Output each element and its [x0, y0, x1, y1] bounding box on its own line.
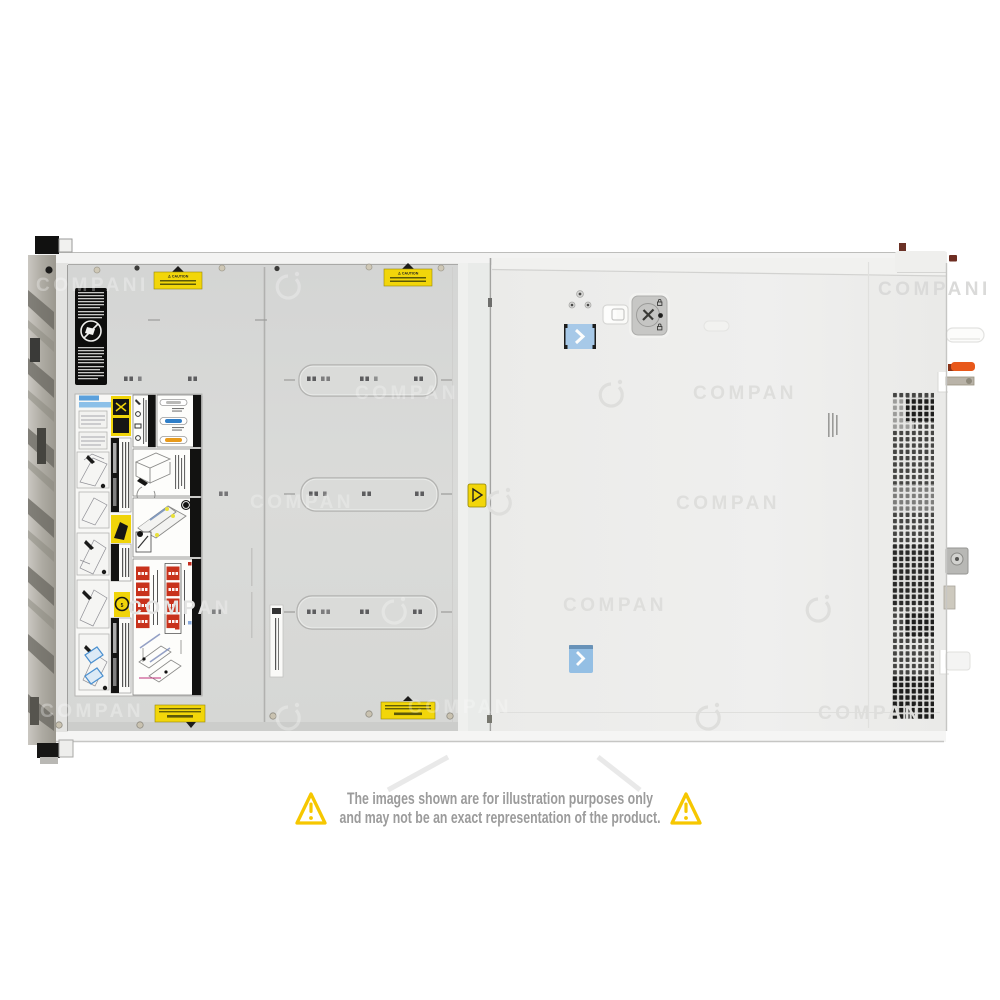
svg-text:COMPAN: COMPAN — [128, 598, 232, 619]
svg-text:5: 5 — [121, 603, 124, 609]
svg-text:COMPANI: COMPANI — [878, 279, 991, 300]
svg-text:⚠ CAUTION: ⚠ CAUTION — [398, 272, 419, 276]
svg-text:COMPAN: COMPAN — [676, 493, 780, 514]
svg-text:COMPANI: COMPANI — [36, 275, 149, 296]
svg-text:⚠ CAUTION: ⚠ CAUTION — [168, 275, 189, 279]
svg-text:COMPAN: COMPAN — [40, 701, 144, 722]
svg-text:The images shown are for illus: The images shown are for illustration pu… — [347, 790, 654, 808]
svg-text:COMPAN: COMPAN — [563, 595, 667, 616]
svg-text:and may not be an exact repres: and may not be an exact representation o… — [340, 809, 661, 827]
svg-text:COMPAN: COMPAN — [355, 383, 459, 404]
svg-text:COMPAN: COMPAN — [250, 492, 354, 513]
svg-text:COMPAN: COMPAN — [818, 703, 922, 724]
svg-text:COMPAN: COMPAN — [693, 383, 797, 404]
svg-text:COMPAN: COMPAN — [408, 697, 512, 718]
